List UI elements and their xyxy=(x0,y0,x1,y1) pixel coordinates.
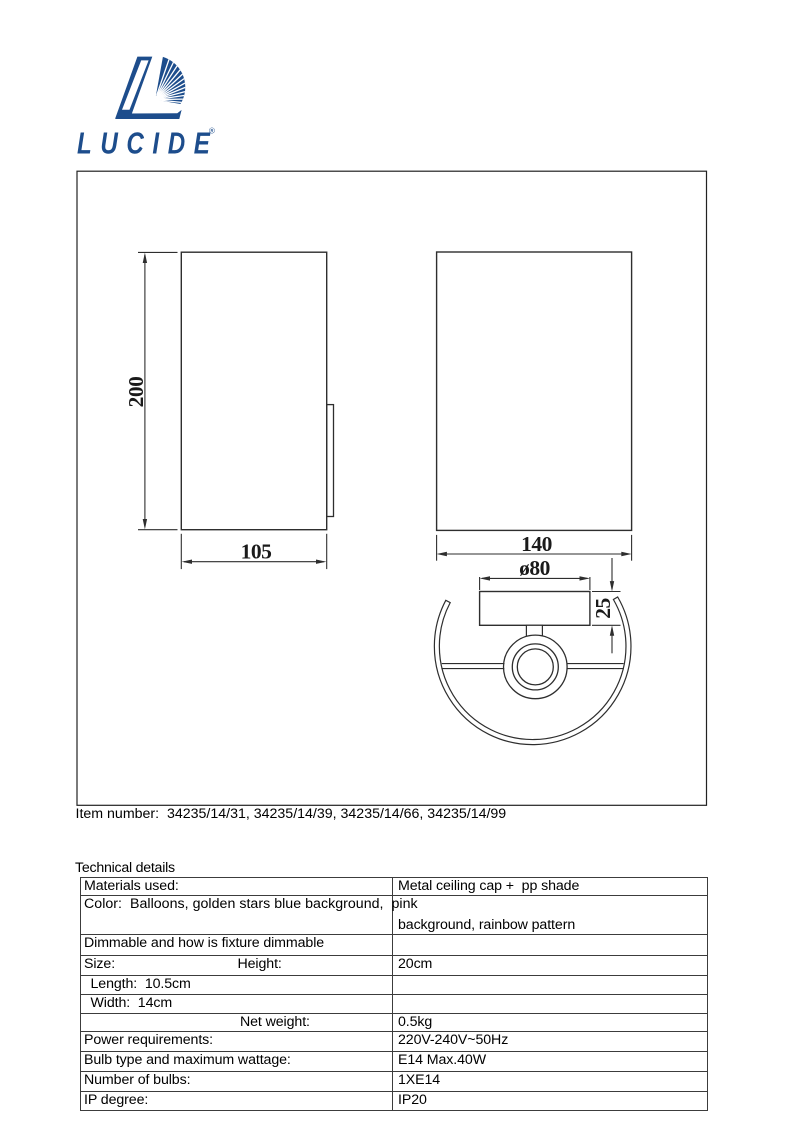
svg-text:105: 105 xyxy=(241,540,272,564)
svg-text:140: 140 xyxy=(521,532,552,556)
svg-text:LUCIDE: LUCIDE xyxy=(77,126,218,161)
svg-text:®: ® xyxy=(209,127,215,136)
svg-text:200: 200 xyxy=(124,377,148,408)
svg-text:ø80: ø80 xyxy=(519,556,550,580)
svg-text:25: 25 xyxy=(591,598,615,619)
